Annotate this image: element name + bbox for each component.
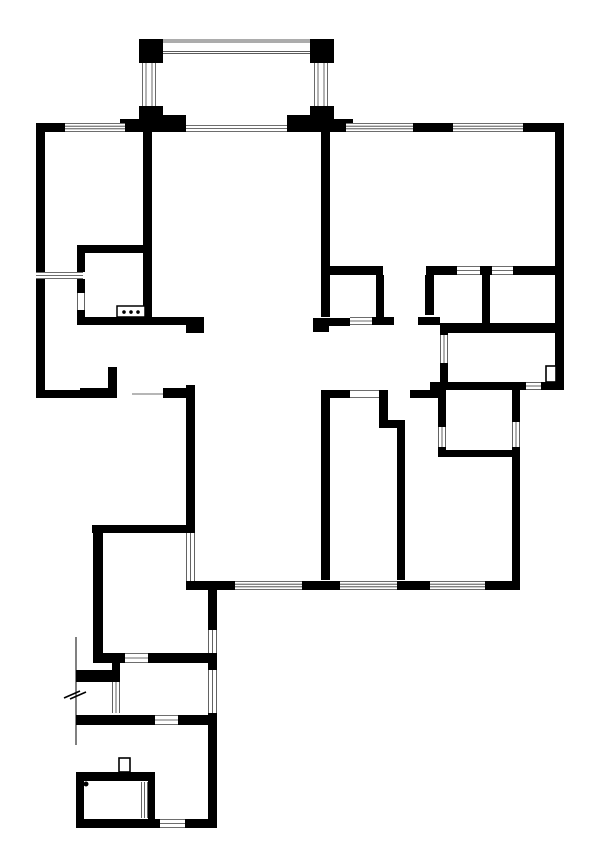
window-gap (77, 293, 85, 310)
wall-segment (512, 390, 520, 422)
window-symbol-vertical (141, 782, 148, 818)
wall-segment (80, 388, 117, 398)
window-symbol-vertical (438, 427, 446, 447)
wall-segment (376, 275, 384, 317)
wall-segment (77, 245, 145, 253)
wall-segment (438, 388, 446, 427)
wall-segment (163, 115, 186, 123)
window-symbol-vertical (208, 630, 217, 653)
wall-segment (440, 323, 448, 335)
window-symbol-vertical (112, 682, 120, 713)
wall-segment (76, 772, 150, 781)
wall-segment (482, 275, 490, 323)
wall-segment (36, 123, 45, 272)
wall-segment (443, 323, 563, 333)
wall-segment (413, 123, 453, 132)
wall-segment (186, 317, 204, 333)
wall-segment (77, 317, 186, 325)
wall-segment (310, 106, 334, 123)
wall-segment (485, 581, 518, 590)
window-symbol-horizontal (155, 715, 178, 725)
wall-segment (438, 450, 520, 457)
wall-segment (330, 266, 383, 275)
wall-segment (76, 819, 160, 828)
window-gap (340, 581, 397, 590)
wall-segment (425, 275, 434, 315)
wall-segment (143, 132, 152, 323)
door-leaf-symbol (546, 366, 556, 382)
wall-segment (36, 279, 45, 390)
wall-segment (310, 39, 334, 63)
window-gap (65, 123, 125, 132)
window-symbol-horizontal (457, 266, 480, 275)
window-symbol-horizontal (36, 272, 83, 279)
window-symbol-horizontal (526, 382, 541, 390)
stove-burner-dot (136, 310, 140, 314)
window-gap (235, 581, 302, 590)
window-gap (346, 123, 413, 132)
wall-segment (426, 266, 457, 275)
wall-segment (287, 123, 346, 132)
wall-segment (125, 123, 186, 132)
wall-segment (372, 317, 394, 325)
wall-segment (321, 123, 330, 317)
window-symbol-horizontal (350, 317, 372, 325)
wall-segment (93, 525, 103, 662)
window-symbol-vertical (440, 335, 448, 363)
window-symbol-horizontal (65, 123, 125, 132)
wall-segment (208, 653, 217, 670)
wall-segment (512, 447, 520, 590)
wall-segment (77, 310, 85, 317)
wall-segment (148, 653, 208, 663)
wall-segment (185, 819, 217, 828)
floor-drain-dot (84, 782, 89, 787)
window-symbol-horizontal (453, 123, 523, 132)
window-symbol-vertical (208, 670, 217, 713)
wall-segment (397, 423, 405, 580)
wall-segment (108, 367, 117, 390)
wall-segment (418, 317, 440, 325)
door-jamb-symbol (119, 758, 130, 772)
wall-segment (76, 715, 120, 725)
wall-segment (77, 279, 85, 293)
wall-segment (208, 590, 217, 630)
wall-segment (480, 266, 492, 275)
wall-segment (120, 715, 155, 725)
wall-segment (92, 525, 190, 533)
wall-segment (112, 662, 120, 682)
wall-segment (321, 390, 330, 580)
window-symbol-horizontal (160, 819, 185, 828)
wall-segment (148, 772, 155, 820)
floor-plan-page (0, 0, 600, 867)
window-gap (430, 581, 485, 590)
window-gap (350, 390, 379, 398)
wall-segment (410, 390, 438, 398)
stove-icon (117, 306, 145, 317)
window-symbol-horizontal (346, 123, 413, 132)
wall-segment (139, 39, 163, 63)
wall-segment (186, 581, 212, 590)
stove-burner-dot (122, 310, 126, 314)
wall-segment (178, 715, 217, 725)
window-symbol-horizontal (340, 581, 397, 590)
window-symbol-vertical (77, 293, 85, 310)
wall-segment (208, 713, 217, 828)
window-symbol-horizontal (235, 581, 302, 590)
window-symbol-horizontal (350, 390, 379, 398)
wall-segment (186, 385, 195, 533)
window-symbol-horizontal (430, 581, 485, 590)
wall-segment (513, 266, 555, 275)
wall-segment (541, 382, 564, 390)
window-symbol-horizontal (492, 266, 513, 275)
window-symbol-horizontal (132, 390, 163, 398)
wall-segment (397, 581, 430, 590)
wall-segment (139, 106, 163, 123)
window-symbol-horizontal (125, 653, 148, 663)
window-symbol-horizontal (186, 125, 287, 132)
wall-segment (77, 253, 85, 272)
floor-plan-drawing (0, 0, 600, 867)
window-symbol-vertical (186, 533, 195, 581)
wall-segment (555, 123, 564, 390)
wall-segment (93, 653, 125, 663)
wall-segment (313, 318, 350, 326)
wall-segment (302, 581, 340, 590)
stove-burner-dot (129, 310, 133, 314)
window-symbol-vertical (512, 422, 520, 447)
wall-segment (287, 115, 310, 123)
window-gap (453, 123, 523, 132)
